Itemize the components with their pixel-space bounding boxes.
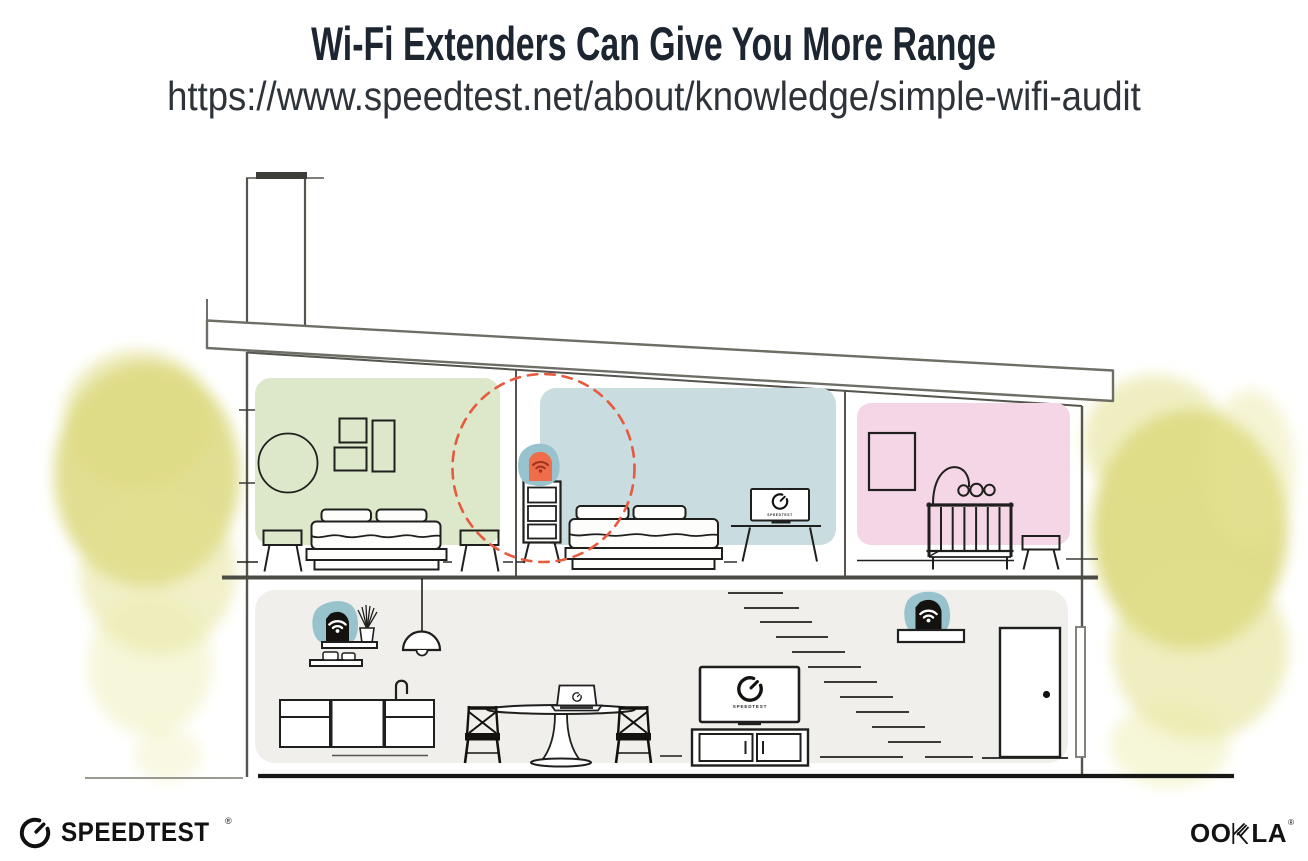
shelf xyxy=(898,630,964,642)
wifi-extender-bedroom xyxy=(518,444,560,487)
ookla-wordmark-right: LA xyxy=(1251,818,1287,849)
ground-line xyxy=(85,776,1234,778)
door xyxy=(1000,628,1060,757)
door-knob xyxy=(1043,691,1050,698)
laptop xyxy=(552,686,602,711)
nursery-pink xyxy=(857,403,1070,570)
gauge-icon xyxy=(16,813,54,851)
chimney xyxy=(246,172,324,327)
living-area: SPEEDTEST xyxy=(255,578,1085,767)
tv-living: SPEEDTEST xyxy=(700,667,799,725)
tree-left xyxy=(54,350,240,781)
registered-mark: ® xyxy=(1288,818,1294,827)
ookla-wordmark-left: OO xyxy=(1190,818,1231,849)
downspout xyxy=(1076,627,1085,757)
tv-screen-label: SPEEDTEST xyxy=(733,704,768,709)
bedroom-blue: SPEEDTEST xyxy=(516,388,836,569)
registered-mark: ® xyxy=(225,816,232,826)
ookla-logo: OO LA ® xyxy=(1190,816,1294,850)
bed xyxy=(307,510,447,570)
wifi-router-kitchen xyxy=(312,601,358,646)
header: Wi-Fi Extenders Can Give You More Range … xyxy=(0,18,1308,119)
bedroom-green xyxy=(237,378,513,572)
infographic-page: Wi-Fi Extenders Can Give You More Range … xyxy=(0,0,1308,861)
speedtest-logo: SPEEDTEST ® xyxy=(16,812,232,852)
tv-screen-label: SPEEDTEST xyxy=(767,513,793,517)
house-illustration: SPEEDTEST xyxy=(0,0,1308,861)
dresser xyxy=(524,482,561,564)
page-url: https://www.speedtest.net/about/knowledg… xyxy=(167,74,1141,119)
tree-right xyxy=(1083,375,1295,787)
page-title: Wi-Fi Extenders Can Give You More Range xyxy=(312,18,997,71)
media-console xyxy=(692,730,808,766)
speedtest-wordmark: SPEEDTEST xyxy=(61,817,210,848)
ookla-k-icon xyxy=(1232,823,1250,844)
